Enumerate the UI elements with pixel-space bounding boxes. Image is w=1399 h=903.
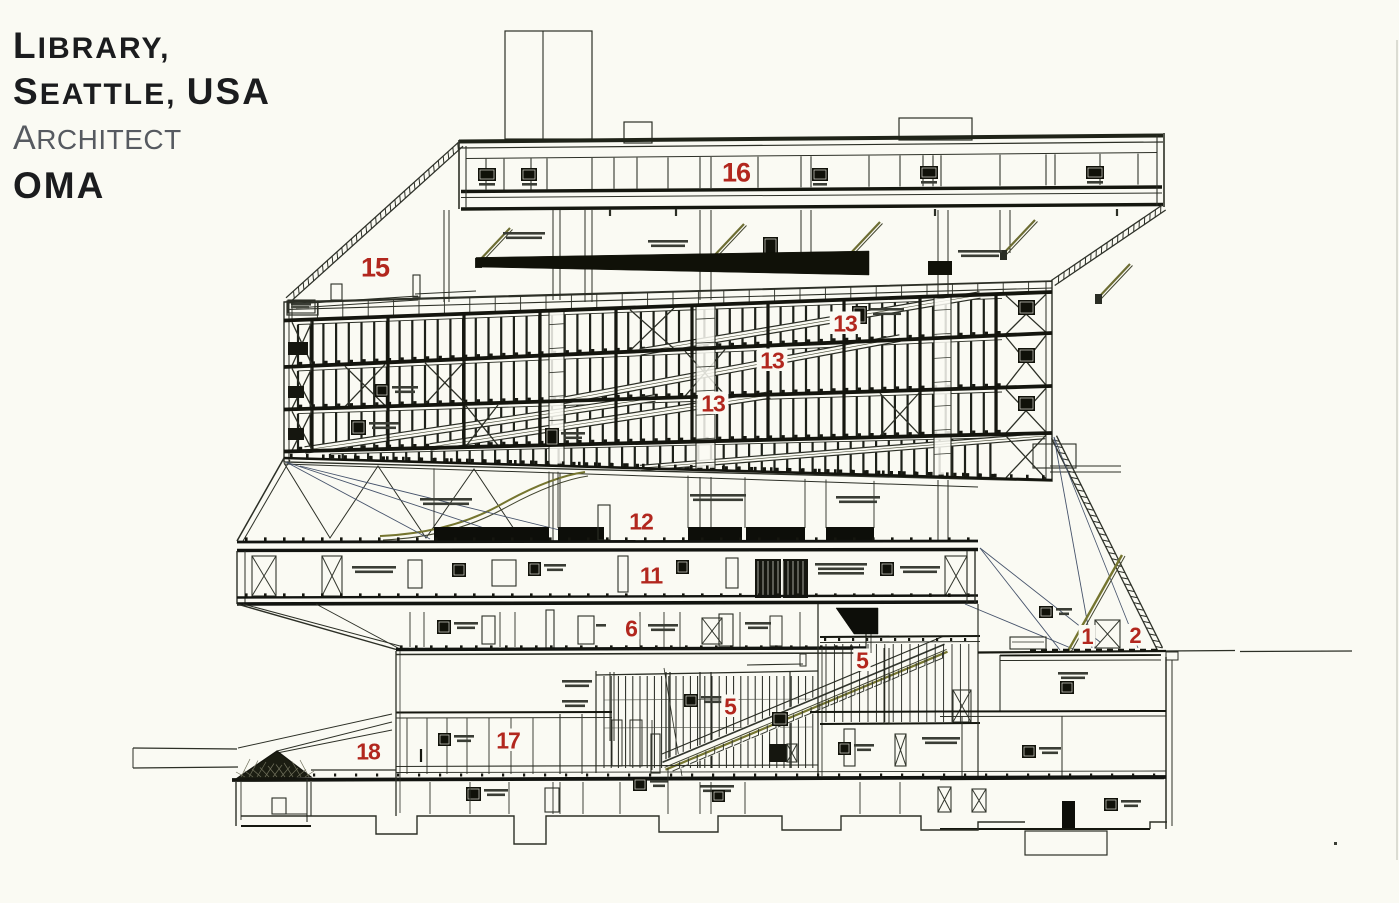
svg-text:13: 13 (760, 347, 784, 373)
svg-text:16: 16 (722, 158, 751, 188)
svg-text:13: 13 (833, 310, 857, 336)
svg-text:1: 1 (1081, 624, 1093, 649)
svg-text:5: 5 (724, 693, 737, 719)
svg-text:17: 17 (496, 727, 520, 753)
svg-text:6: 6 (625, 615, 637, 641)
svg-text:5: 5 (856, 647, 869, 673)
svg-text:2: 2 (1129, 623, 1141, 648)
svg-text:11: 11 (640, 562, 664, 588)
svg-text:12: 12 (629, 508, 653, 534)
svg-text:13: 13 (701, 390, 725, 416)
svg-text:18: 18 (356, 738, 381, 764)
svg-text:15: 15 (361, 253, 390, 283)
